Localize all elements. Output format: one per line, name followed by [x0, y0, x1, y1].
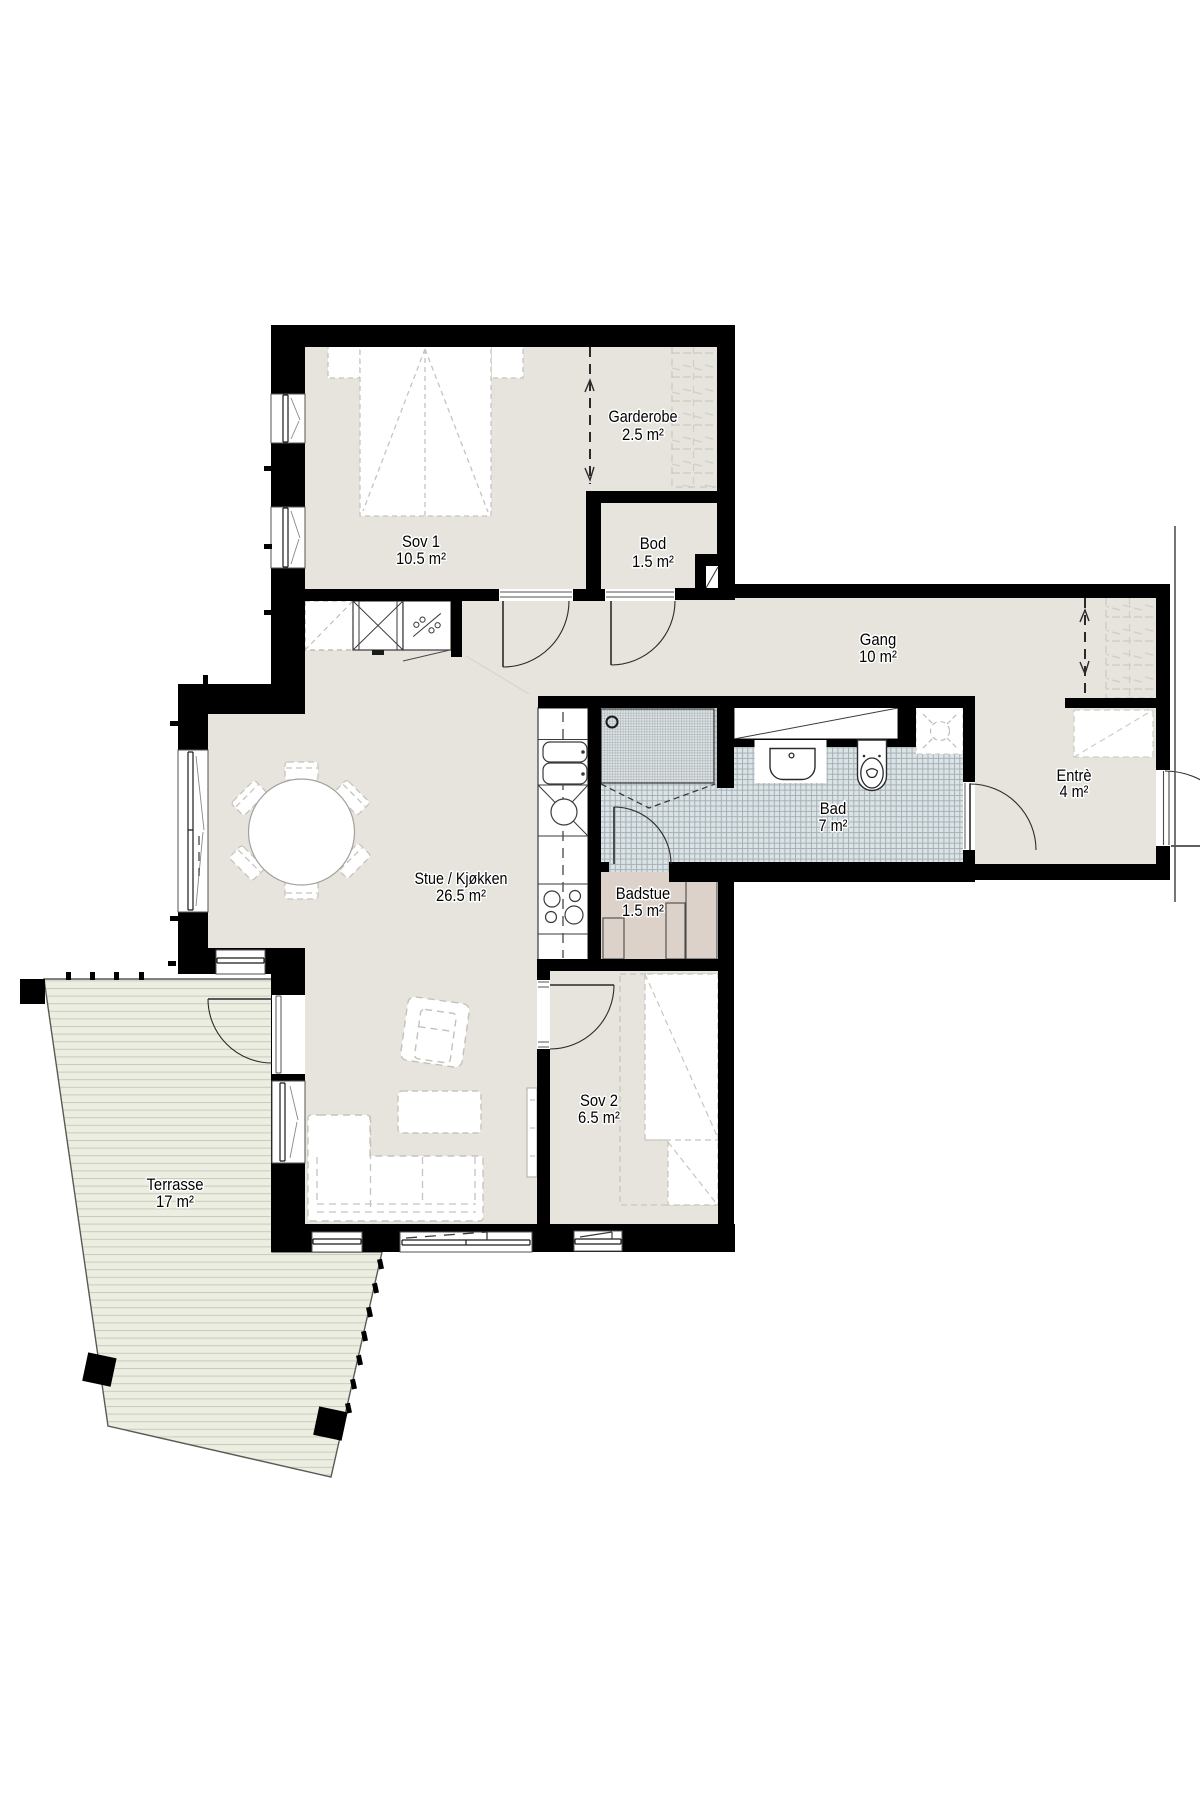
svg-text:1.5 m²: 1.5 m²	[632, 553, 674, 571]
svg-text:Badstue: Badstue	[616, 885, 671, 903]
svg-text:1.5 m²: 1.5 m²	[622, 902, 664, 920]
svg-text:4 m²: 4 m²	[1060, 783, 1089, 801]
svg-text:26.5 m²: 26.5 m²	[436, 887, 486, 905]
svg-text:Stue / Kjøkken: Stue / Kjøkken	[415, 870, 508, 888]
svg-text:7 m²: 7 m²	[819, 817, 848, 835]
svg-text:Sov 1: Sov 1	[402, 533, 440, 551]
svg-text:Gang: Gang	[860, 631, 897, 649]
svg-text:Bod: Bod	[640, 535, 667, 553]
svg-text:Sov 2: Sov 2	[580, 1092, 618, 1110]
svg-text:Bad: Bad	[820, 800, 847, 818]
svg-text:10.5 m²: 10.5 m²	[396, 550, 446, 568]
svg-text:17 m²: 17 m²	[156, 1193, 194, 1211]
svg-text:6.5 m²: 6.5 m²	[578, 1109, 620, 1127]
svg-text:10 m²: 10 m²	[859, 648, 897, 666]
svg-text:Garderobe: Garderobe	[609, 408, 678, 426]
svg-text:2.5 m²: 2.5 m²	[622, 426, 664, 444]
svg-text:Terrasse: Terrasse	[147, 1176, 204, 1194]
